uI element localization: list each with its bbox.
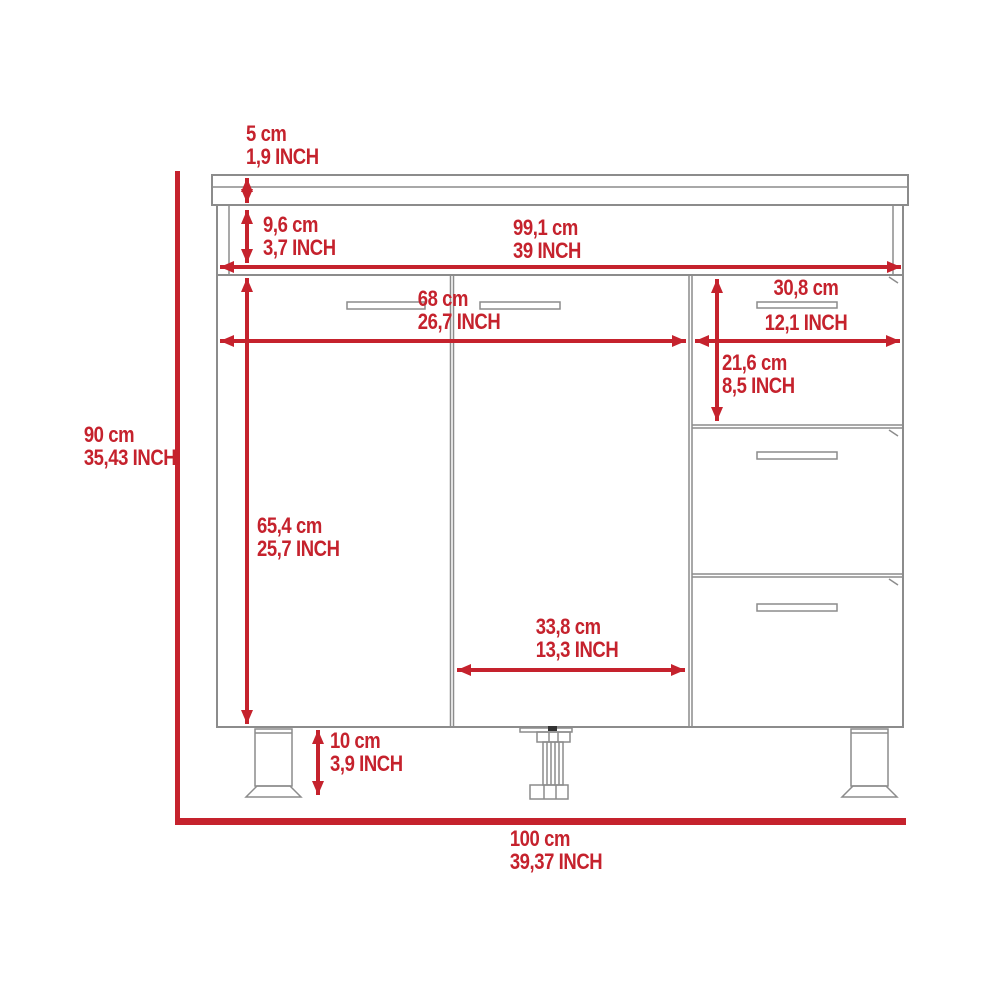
drawer2-handle <box>757 452 837 459</box>
cabinet-line-art <box>0 0 1000 1000</box>
label-drawer-width-cm: 30,8 cm <box>774 276 839 299</box>
label-door-height-cm: 65,4 cm <box>257 514 340 537</box>
label-double-door-width-inch: 26,7 INCH <box>418 310 501 333</box>
label-interior-width: 99,1 cm 39 INCH <box>513 216 581 262</box>
drawer3-handle <box>757 604 837 611</box>
label-right-door-width: 33,8 cm 13,3 INCH <box>536 615 619 661</box>
label-drawer-front-height-cm: 21,6 cm <box>722 351 795 374</box>
label-countertop-thickness: 5 cm 1,9 INCH <box>246 122 319 168</box>
label-door-height: 65,4 cm 25,7 INCH <box>257 514 340 560</box>
label-double-door-width: 68 cm 26,7 INCH <box>418 287 501 333</box>
label-overall-width-cm: 100 cm <box>510 827 602 850</box>
label-drawer-front-height: 21,6 cm 8,5 INCH <box>722 351 795 397</box>
label-overall-height: 90 cm 35,43 INCH <box>84 423 176 469</box>
label-drawer-width-inch: 12,1 INCH <box>765 311 848 334</box>
label-top-rail-inch: 3,7 INCH <box>263 236 336 259</box>
left-door-handle <box>347 302 425 309</box>
label-overall-width-inch: 39,37 INCH <box>510 850 602 873</box>
label-countertop-thickness-inch: 1,9 INCH <box>246 145 319 168</box>
label-overall-height-inch: 35,43 INCH <box>84 446 176 469</box>
center-adjustable-leg <box>520 726 572 799</box>
label-double-door-width-cm: 68 cm <box>418 287 501 310</box>
label-top-rail-cm: 9,6 cm <box>263 213 336 236</box>
countertop <box>212 175 908 205</box>
label-overall-height-cm: 90 cm <box>84 423 176 446</box>
label-overall-width: 100 cm 39,37 INCH <box>510 827 602 873</box>
drawer1-handle <box>757 302 837 308</box>
handles <box>347 302 837 611</box>
right-leg <box>842 729 897 797</box>
label-interior-width-inch: 39 INCH <box>513 239 581 262</box>
label-countertop-thickness-cm: 5 cm <box>246 122 319 145</box>
label-leg-height-inch: 3,9 INCH <box>330 752 403 775</box>
label-top-rail-height: 9,6 cm 3,7 INCH <box>263 213 336 259</box>
label-leg-height: 10 cm 3,9 INCH <box>330 729 403 775</box>
cabinet-dimension-diagram: 5 cm 1,9 INCH 9,6 cm 3,7 INCH 99,1 cm 39… <box>0 0 1000 1000</box>
left-leg <box>246 729 301 797</box>
label-right-door-width-cm: 33,8 cm <box>536 615 619 638</box>
label-right-door-width-inch: 13,3 INCH <box>536 638 619 661</box>
label-leg-height-cm: 10 cm <box>330 729 403 752</box>
label-drawer-front-height-inch: 8,5 INCH <box>722 374 795 397</box>
label-interior-width-cm: 99,1 cm <box>513 216 581 239</box>
label-door-height-inch: 25,7 INCH <box>257 537 340 560</box>
